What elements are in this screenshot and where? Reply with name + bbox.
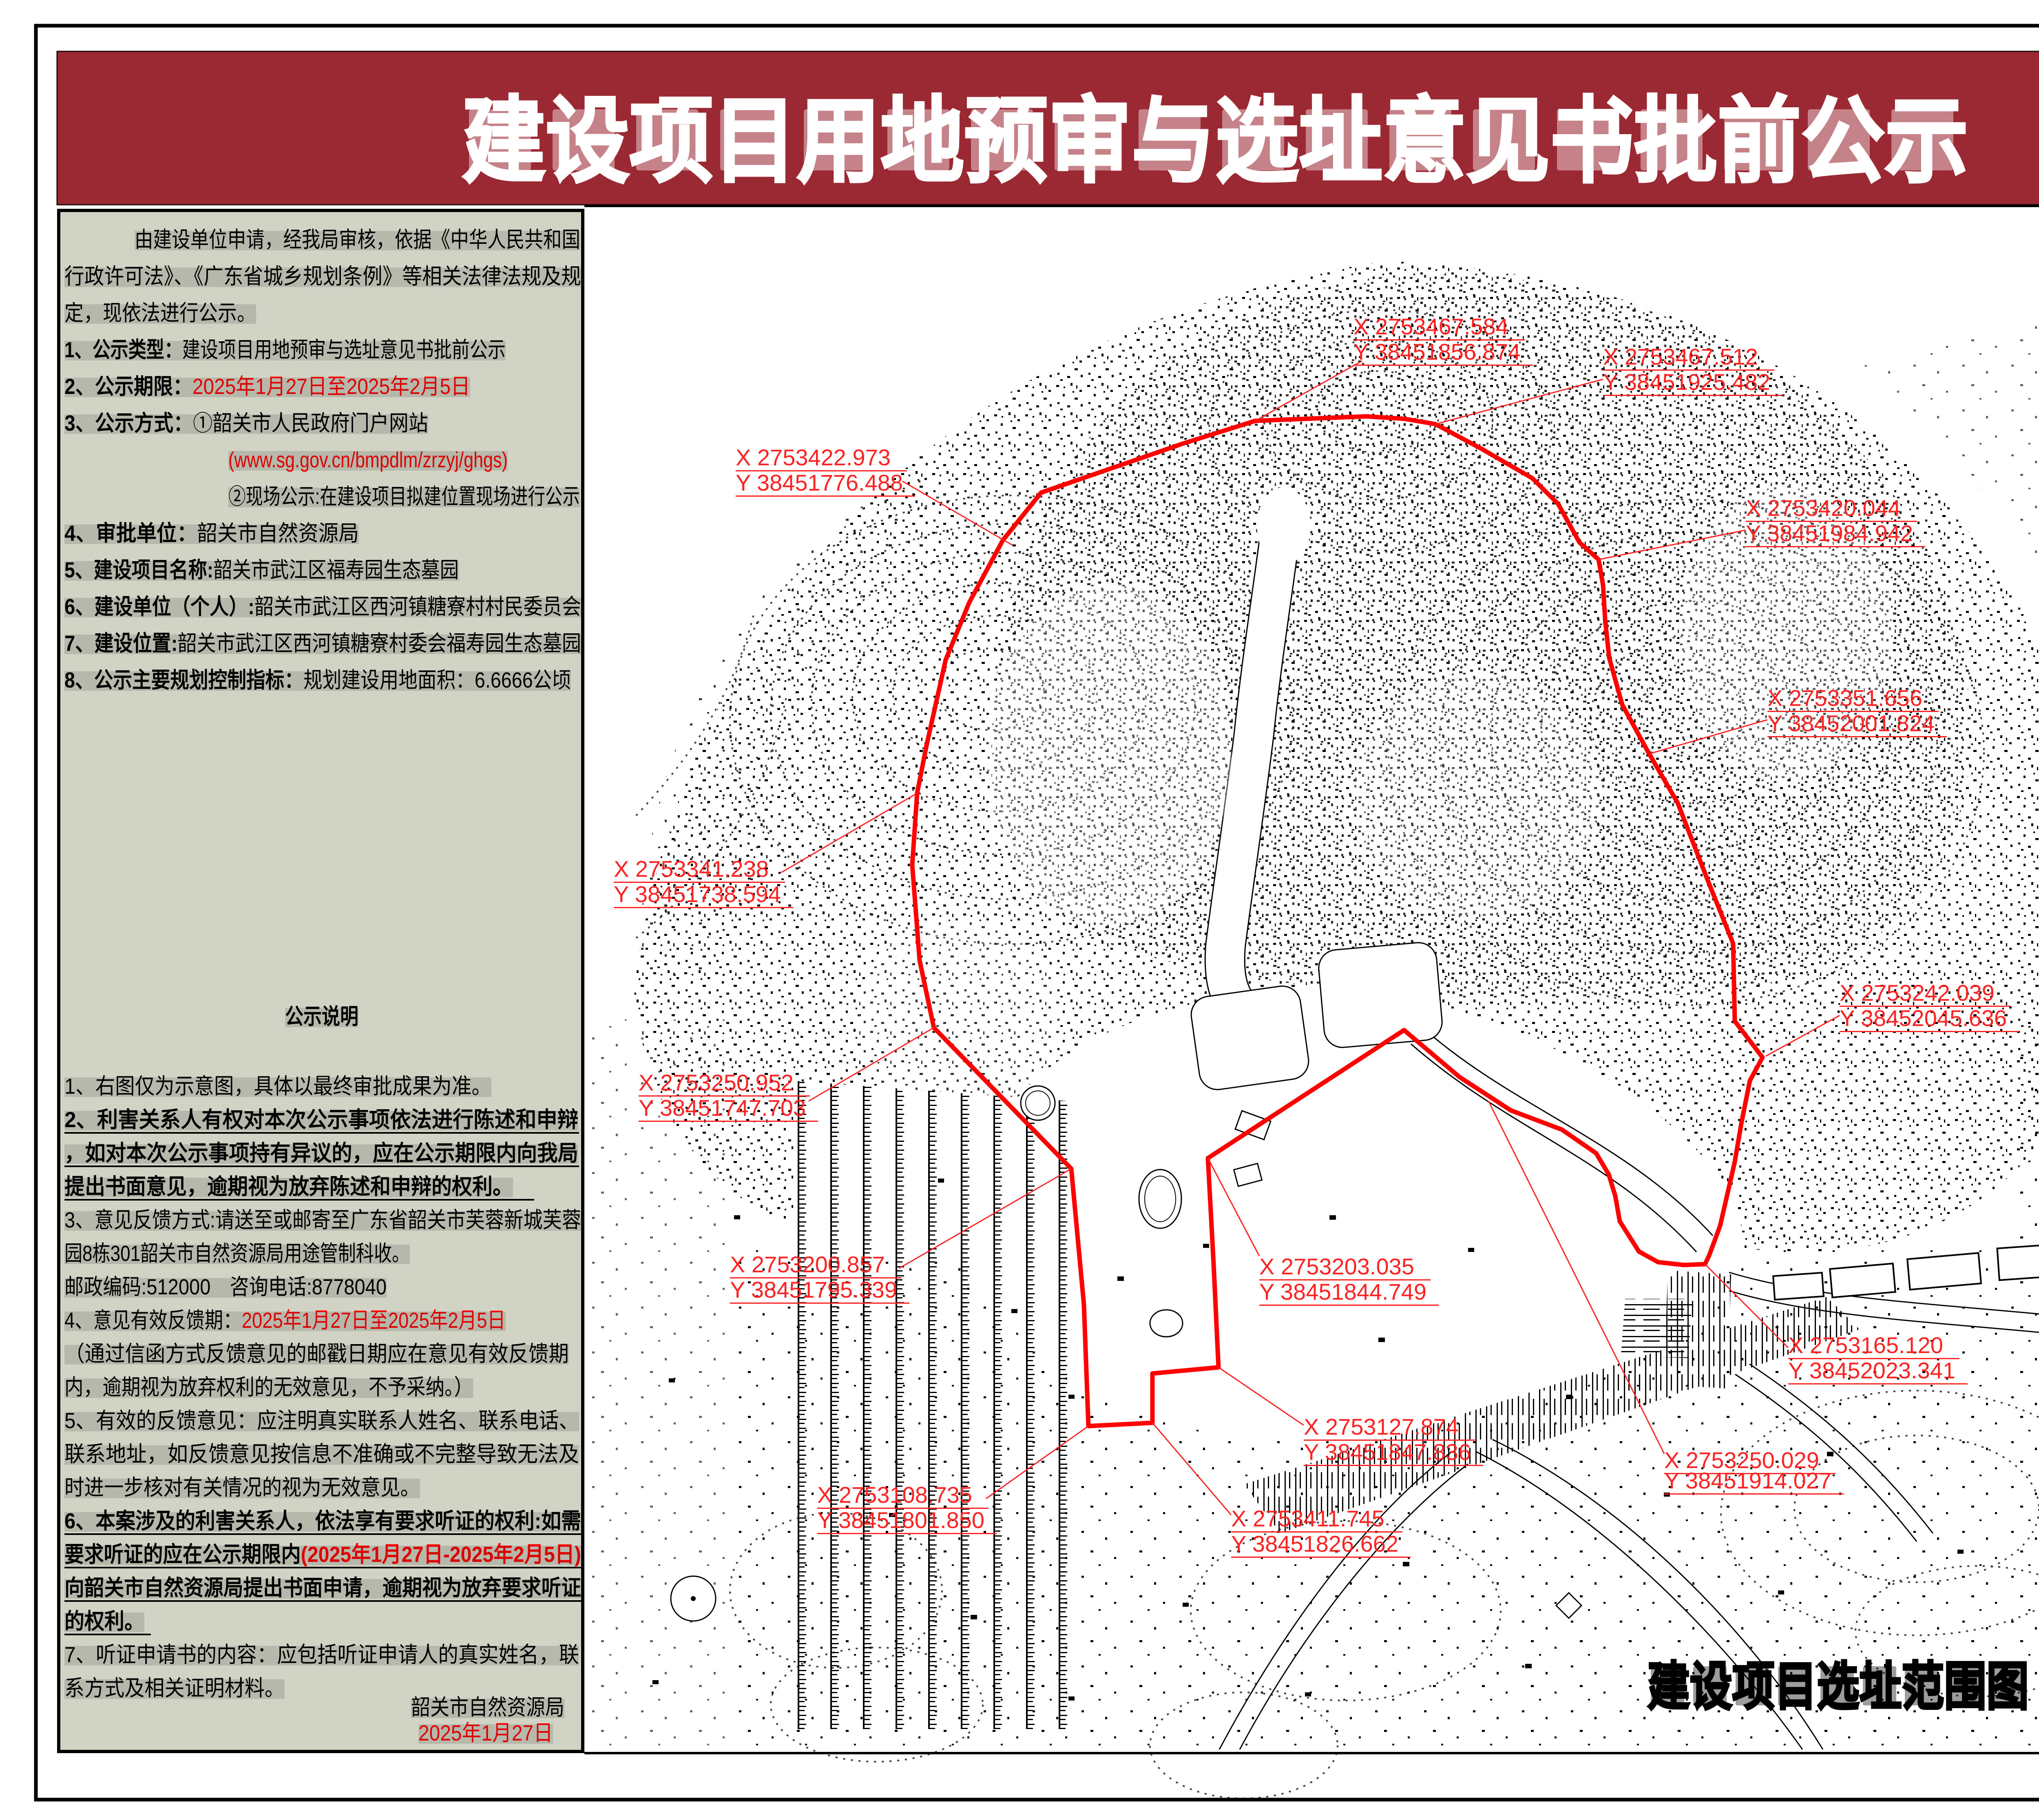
svg-text:Y 38451776.488: Y 38451776.488 <box>736 470 903 495</box>
svg-text:X 2753250.952: X 2753250.952 <box>639 1070 794 1095</box>
svg-text:X 2753203.035: X 2753203.035 <box>1259 1254 1414 1279</box>
svg-text:Y 38451984.942: Y 38451984.942 <box>1746 520 1913 546</box>
svg-text:Y 38451738.594: Y 38451738.594 <box>614 881 781 907</box>
svg-text:X 2753108.735: X 2753108.735 <box>817 1482 972 1508</box>
svg-text:建设项目选址范围图: 建设项目选址范围图 <box>1648 1658 2029 1716</box>
svg-text:X 2753411.745: X 2753411.745 <box>1231 1506 1384 1531</box>
svg-text:X 2753200.857: X 2753200.857 <box>730 1252 885 1277</box>
svg-text:Y 38451844.749: Y 38451844.749 <box>1259 1279 1426 1305</box>
svg-text:Y 38451856.874: Y 38451856.874 <box>1353 339 1521 365</box>
svg-text:Y 38452001.824: Y 38452001.824 <box>1767 710 1935 736</box>
svg-text:X 2753467.584: X 2753467.584 <box>1353 314 1508 339</box>
svg-text:Y 38451801.850: Y 38451801.850 <box>817 1507 984 1533</box>
svg-text:X 2753127.874: X 2753127.874 <box>1304 1414 1459 1440</box>
svg-text:X 2753341.238: X 2753341.238 <box>614 856 769 882</box>
svg-text:Y 38451847.836: Y 38451847.836 <box>1304 1439 1471 1465</box>
svg-text:X 2753242.039: X 2753242.039 <box>1840 980 1995 1006</box>
svg-text:Y 38451925.482: Y 38451925.482 <box>1603 369 1770 395</box>
svg-text:X 2753420.044: X 2753420.044 <box>1746 495 1901 521</box>
svg-text:Y 38451795.339: Y 38451795.339 <box>730 1277 897 1303</box>
svg-text:Y 38451914.027: Y 38451914.027 <box>1664 1468 1831 1493</box>
svg-text:X 2753422.973: X 2753422.973 <box>736 444 891 470</box>
svg-text:X 2753467.512: X 2753467.512 <box>1603 344 1758 369</box>
svg-text:Y 38452023.341: Y 38452023.341 <box>1788 1358 1955 1383</box>
svg-text:X 2753351.656: X 2753351.656 <box>1767 685 1922 711</box>
svg-text:建设项目用地预审与选址意见书批前公示: 建设项目用地预审与选址意见书批前公示 <box>462 89 1968 194</box>
svg-text:Y 38452045.636: Y 38452045.636 <box>1840 1005 2007 1031</box>
svg-text:X 2753165.120: X 2753165.120 <box>1788 1332 1943 1358</box>
svg-text:Y 38451826.662: Y 38451826.662 <box>1231 1531 1398 1557</box>
svg-text:Y 38451747.703: Y 38451747.703 <box>639 1095 806 1121</box>
